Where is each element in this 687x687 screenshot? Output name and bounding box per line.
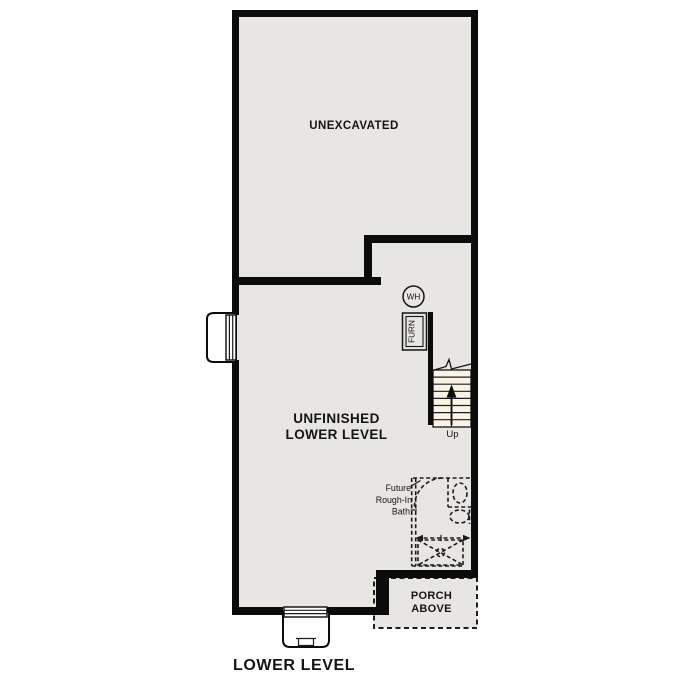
porch-label-line1: PORCH	[411, 590, 452, 602]
furnace-label: FURN	[408, 320, 417, 343]
main-room-label-line1: UNFINISHED	[293, 411, 380, 426]
wall-top	[232, 10, 478, 17]
floor-plan-drawing: WH FURN UNEXCAVATED UNFINISHED LOWER LEV…	[0, 0, 687, 687]
staircase	[431, 360, 471, 428]
stairs-up-label: Up	[446, 429, 458, 440]
left-window-well-group	[207, 313, 236, 362]
wall-divider-step-horizontal	[364, 235, 478, 243]
furnace-symbol: FURN	[403, 313, 427, 350]
wall-unexcavated-divider	[232, 277, 381, 285]
wall-porch-notch-horizontal	[376, 570, 478, 578]
main-room-label-line2: LOWER LEVEL	[286, 427, 388, 442]
bath-label-line2: Rough-In	[376, 495, 412, 505]
egress-window	[284, 607, 327, 617]
wall-bottom-left-segment	[232, 607, 283, 615]
water-heater-symbol: WH	[403, 286, 424, 307]
wall-stairwell	[428, 312, 433, 425]
bath-label-line3: Bath	[392, 507, 410, 517]
egress-window-well-group	[283, 607, 329, 647]
left-window	[226, 315, 236, 360]
porch-label-line2: ABOVE	[411, 603, 452, 615]
wall-left-upper	[232, 10, 239, 315]
water-heater-label: WH	[407, 293, 421, 302]
building-floor-fill	[236, 14, 474, 611]
wall-right	[471, 10, 478, 578]
wall-left-lower	[232, 360, 239, 615]
bath-label-line1: Future	[386, 483, 412, 493]
floor-plan-page: WH FURN UNEXCAVATED UNFINISHED LOWER LEV…	[0, 0, 687, 687]
page-title: LOWER LEVEL	[233, 657, 355, 674]
unexcavated-label: UNEXCAVATED	[309, 120, 398, 132]
